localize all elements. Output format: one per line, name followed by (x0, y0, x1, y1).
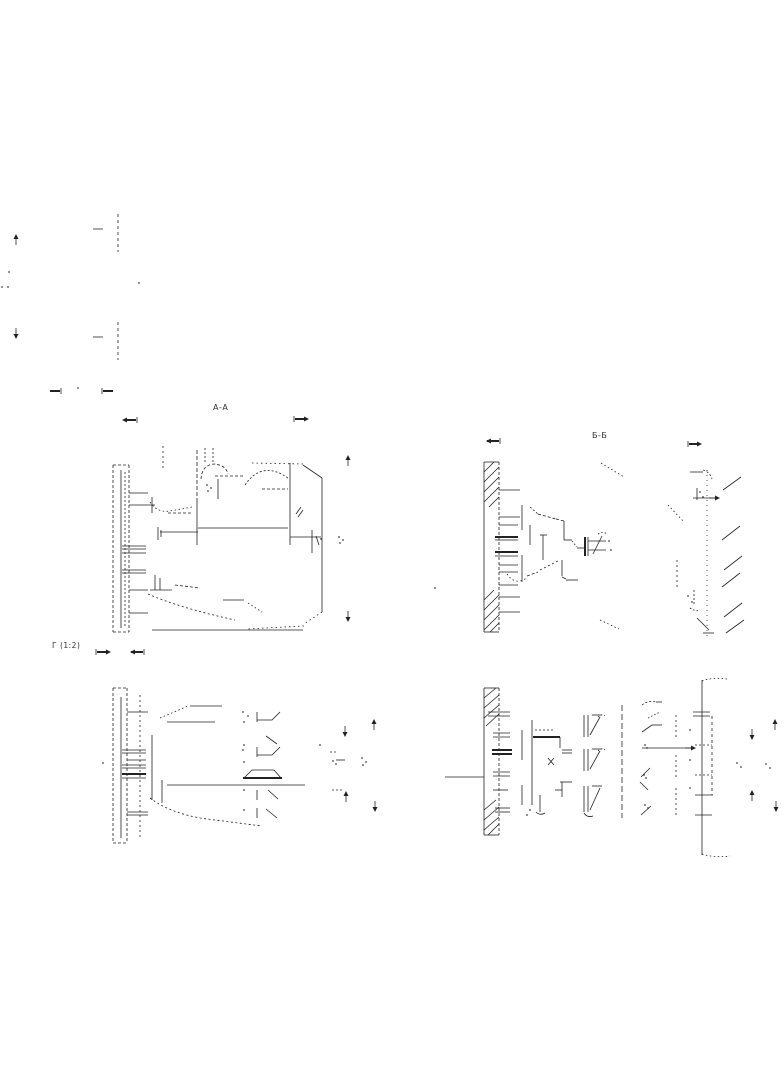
curve (642, 701, 656, 705)
dot (689, 729, 690, 730)
dot (689, 787, 690, 788)
dot (243, 721, 244, 722)
dot (361, 757, 362, 758)
section-arrow (346, 617, 351, 622)
dot (610, 549, 611, 550)
line (490, 623, 499, 632)
line (600, 620, 619, 629)
line (247, 626, 304, 629)
section-arrow (750, 790, 755, 795)
line (530, 507, 538, 514)
line (538, 514, 556, 519)
dot (769, 767, 770, 768)
dot (691, 601, 692, 602)
line (668, 505, 684, 522)
detail-view-g (96, 649, 378, 843)
line (641, 806, 651, 815)
curve (702, 678, 727, 681)
dot (77, 387, 78, 388)
cad-drawing-canvas: А-АБ-БГ (1:2) (0, 0, 784, 1066)
line (640, 782, 648, 790)
dot (320, 538, 321, 539)
dot (702, 496, 703, 497)
section-arrow (343, 732, 348, 737)
line (562, 577, 566, 579)
dot (687, 595, 688, 596)
curve (150, 798, 262, 826)
line (484, 817, 499, 830)
dot (319, 744, 320, 745)
line (266, 736, 277, 744)
section-arrow (715, 496, 720, 501)
section-view-bottom-right (445, 678, 779, 856)
section-arrow (14, 234, 19, 239)
section-arrow (773, 719, 778, 724)
curve (150, 502, 192, 511)
line (296, 507, 301, 514)
dot (8, 271, 9, 272)
dot (526, 814, 527, 815)
dot (529, 809, 530, 810)
dot (243, 809, 244, 810)
line (484, 807, 499, 820)
curve (245, 470, 288, 485)
line (724, 603, 742, 617)
dot (243, 761, 244, 762)
line (484, 695, 499, 708)
line (590, 717, 600, 735)
dot (365, 761, 366, 762)
section-arrow (750, 735, 755, 740)
line (160, 706, 188, 718)
dot (102, 762, 103, 763)
line (590, 788, 600, 810)
line (724, 556, 742, 570)
line (601, 463, 624, 477)
dot (332, 760, 333, 761)
line (266, 809, 277, 818)
dot (335, 763, 336, 764)
dot (210, 487, 211, 488)
line (298, 510, 303, 517)
line (484, 688, 496, 698)
dot (736, 762, 737, 763)
line (540, 561, 558, 570)
line (175, 585, 200, 588)
line (722, 526, 740, 540)
curve (598, 533, 607, 535)
dot (644, 804, 645, 805)
line (723, 477, 741, 490)
section-arrow (372, 719, 377, 724)
section-view-b-b (434, 438, 744, 638)
dot (765, 763, 766, 764)
dot (206, 484, 207, 485)
section-arrow (697, 442, 702, 447)
curve (201, 464, 228, 479)
line (489, 497, 499, 507)
line (648, 712, 660, 718)
line (556, 519, 564, 521)
partial-view-top-left (1, 214, 139, 394)
line (248, 603, 262, 612)
line (593, 536, 602, 554)
line (527, 572, 538, 576)
section-arrow (304, 417, 309, 422)
curve (584, 813, 593, 817)
dot (339, 542, 340, 543)
line (484, 800, 496, 810)
dot (1, 286, 2, 287)
dot (242, 749, 243, 750)
dot (689, 759, 690, 760)
dot (207, 490, 208, 491)
curve (536, 812, 545, 814)
dot (740, 766, 741, 767)
line (268, 790, 278, 799)
polyline (244, 770, 281, 778)
line (252, 463, 303, 464)
line (590, 751, 600, 769)
line (484, 590, 494, 600)
dot (608, 540, 609, 541)
dot (338, 536, 339, 537)
polyline (257, 712, 280, 720)
dot (342, 539, 343, 540)
section-arrow (346, 455, 351, 460)
curve (507, 574, 527, 581)
dot (434, 587, 435, 588)
curve (690, 608, 700, 611)
detail-view-label-g: Г (1:2) (52, 641, 80, 650)
dot (138, 282, 139, 283)
line (304, 612, 322, 624)
section-arrow (106, 650, 111, 655)
line (641, 768, 650, 777)
section-label-a-a: А-А (213, 403, 228, 412)
line (303, 465, 322, 478)
line (488, 824, 499, 835)
line (484, 462, 494, 472)
section-arrow (344, 791, 349, 796)
dot (699, 491, 700, 492)
dot (362, 764, 363, 765)
line (697, 618, 709, 630)
curve (702, 854, 730, 857)
section-view-a-a (113, 416, 351, 632)
section-arrow (14, 334, 19, 339)
dot (247, 715, 248, 716)
section-label-b-b: Б-Б (592, 431, 607, 440)
dot (645, 777, 646, 778)
section-arrow (774, 807, 779, 812)
drawing-sheet: А-АБ-БГ (1:2) (0, 0, 784, 1066)
dot (243, 744, 244, 745)
line (572, 541, 577, 547)
line (726, 620, 744, 633)
curve (148, 594, 235, 620)
line (722, 573, 740, 587)
dot (7, 286, 8, 287)
section-arrow (373, 807, 378, 812)
dot (243, 789, 244, 790)
dot (644, 744, 645, 745)
polyline (257, 747, 280, 755)
curve (703, 470, 712, 479)
line (642, 725, 652, 732)
section-arrow (691, 746, 696, 751)
dot (242, 711, 243, 712)
